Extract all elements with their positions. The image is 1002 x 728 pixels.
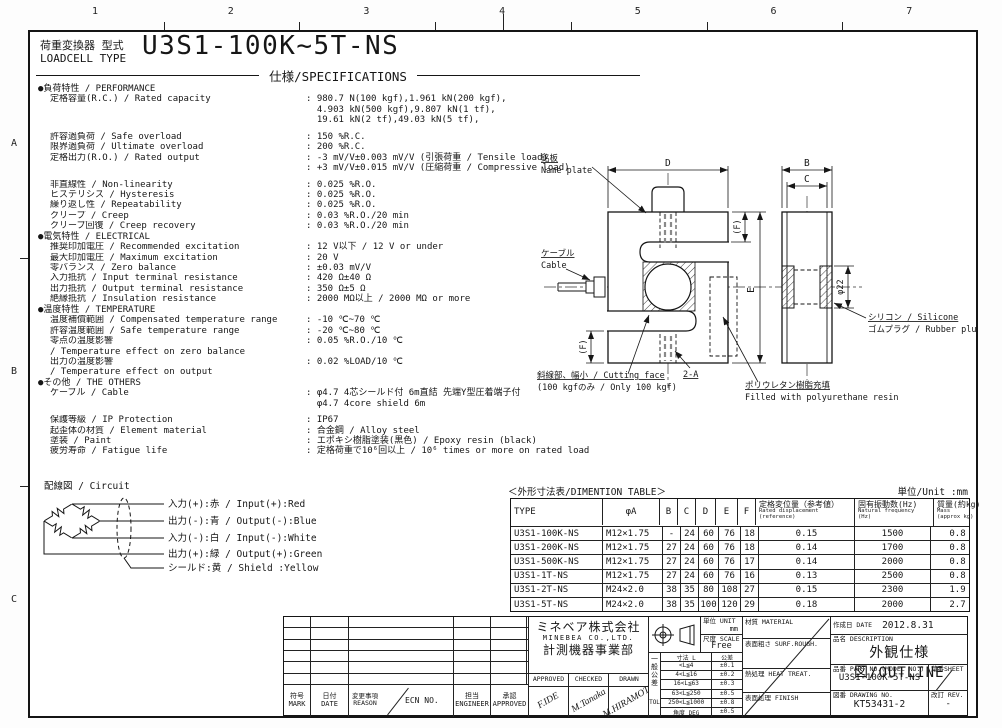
dimension-table-cell: 29 [741, 598, 759, 611]
spec-row: 保護等級 / IP Protection: IP67 [38, 415, 540, 425]
dimension-table-row: U3S1-2T-NSM24×2.0383580108270.1523001.9 [511, 584, 969, 598]
spec-section-header: ●負荷特性 / PERFORMANCE [38, 84, 540, 94]
dimension-table-header-cell: 固有振動数(Hz)Natural frequency(Hz) [855, 499, 934, 526]
spec-row: 最大印加電圧 / Maximum excitation: 20 V [38, 253, 540, 263]
dimension-table-header-cell: 質量(約kg)Mass(approx kg) [934, 499, 990, 526]
cutting-face-callout-en: (100 kgfのみ / Only 100 kgf) [537, 383, 677, 393]
spec-row: 入力抵抗 / Input terminal resistance: 420 Ω±… [38, 273, 540, 283]
sheet-label: 葉番SHEET [929, 665, 968, 673]
dimension-table-cell: 76 [719, 570, 741, 583]
spec-value: : 0.025 %R.O. [306, 180, 376, 190]
spec-label: 許容温度範囲 / Safe temperature range [38, 326, 306, 336]
spec-label: 疲労寿命 / Fatigue life [38, 446, 306, 456]
loadcell-type-label-en: LOADCELL TYPE [40, 52, 126, 65]
revision-mark-header: 符号MARK [284, 685, 311, 717]
spec-row: 定格出力(R.O.) / Rated output: -3 mV/V±0.003… [38, 153, 540, 163]
dimension-table-cell: U3S1-500K-NS [511, 555, 603, 568]
spec-row: φ4.7 4core shield 6m [38, 399, 540, 409]
dimension-table-row: U3S1-5T-NSM24×2.03835100120290.1820002.7 [511, 598, 969, 611]
unit-cell: 単位 UNIT mm [701, 617, 743, 635]
spec-label: 推奨印加電圧 / Recommended excitation [38, 242, 306, 252]
spec-row: : +3 mV/V±0.015 mV/V (圧縮荷重 / Compressive… [38, 163, 540, 173]
ruler-tick [20, 258, 28, 259]
dimension-table-cell: 2300 [855, 584, 931, 597]
material-block: 材質 MATERIAL 表面粗さ SURF.ROUGH. 熱処理 HEAT TR… [743, 617, 831, 717]
dimension-table-cell: M24×2.0 [603, 584, 663, 597]
spec-row: 出力抵抗 / Output terminal resistance: 350 Ω… [38, 284, 540, 294]
dimension-table-header-cell: D [696, 499, 716, 525]
spec-value: : 350 Ω±5 Ω [306, 284, 366, 294]
dimension-table-cell: 35 [681, 598, 699, 611]
spec-value: : +3 mV/V±0.015 mV/V (圧縮荷重 / Compressive… [306, 163, 570, 173]
dimension-table-caption: ＜外形寸法表/DIMENTION TABLE＞ 単位/Unit :mm [508, 484, 968, 498]
spec-label [38, 105, 306, 115]
specifications-title: 仕様/SPECIFICATIONS [269, 66, 407, 85]
front-view [558, 187, 737, 363]
dimension-table-row: U3S1-100K-NSM12×1.75-246076180.1515000.8 [511, 527, 969, 541]
dimension-table-row: U3S1-1T-NSM12×1.7527246076160.1325000.8 [511, 570, 969, 584]
revision-history-rows [284, 617, 528, 685]
dimension-table-cell: 60 [699, 555, 719, 568]
info-block: 作成日 DATE 2012.8.31 品名 DESCRIPTION 外観仕様図/… [831, 617, 968, 717]
dimension-table-cell: 0.13 [759, 570, 855, 583]
spec-row: 塗装 / Paint: エポキシ樹脂塗装(黒色) / Epoxy resin (… [38, 436, 540, 446]
dimension-table-cell: 38 [663, 584, 681, 597]
spec-label: 許容過負荷 / Safe overload [38, 132, 306, 142]
projection-symbol-cell [648, 617, 701, 653]
resin-callout-jp: ポリウレタン樹脂充填 [745, 380, 831, 391]
spec-label: 定格出力(R.O.) / Rated output [38, 153, 306, 163]
dimension-table-cell: 0.8 [931, 527, 984, 540]
spec-row: 零点の温度影響: 0.05 %R.O./10 ℃ [38, 336, 540, 346]
unit-value: mm [701, 625, 742, 633]
dimension-table-cell: 0.8 [931, 555, 984, 568]
spec-label: 保護等級 / IP Protection [38, 415, 306, 425]
dimension-table-cell: 0.18 [759, 598, 855, 611]
spec-label: クリープ回復 / Creep recovery [38, 221, 306, 231]
spec-row: 出力の温度影響: 0.02 %LOAD/10 ℃ [38, 357, 540, 367]
resin-callout-en: Filled with polyurethane resin [745, 393, 899, 403]
cable-callout-en: Cable [541, 261, 567, 271]
revision-approved-header: 承認APPROVED [491, 685, 528, 717]
title-block: 符号MARK 日付DATE 変更事項REASON ECN NO. 担当ENGIN… [283, 616, 968, 716]
ruler-tick [842, 22, 843, 30]
dimension-table-cell: M24×2.0 [603, 598, 663, 611]
spec-row: 疲労寿命 / Fatigue life: 定格荷重で10⁶回以上 / 10⁶ t… [38, 446, 540, 456]
dimension-table-cell: 18 [741, 541, 759, 554]
ruler-col-6: 6 [771, 6, 777, 17]
spec-label: ヒステリシス / Hysteresis [38, 190, 306, 200]
dimension-table-cell: U3S1-100K-NS [511, 527, 603, 540]
dimension-table-header-row: TYPEφABCDEF定格変位量（参考値）Rated displacement(… [511, 499, 969, 527]
spec-row: 4.903 kN(500 kgf),9.807 kN(1 tf), [38, 105, 540, 115]
spec-label: 入力抵抗 / Input terminal resistance [38, 273, 306, 283]
revision-empty-row [284, 662, 528, 673]
rubber-plug-left [782, 266, 794, 308]
dimension-table-cell: 27 [663, 541, 681, 554]
spec-label [38, 399, 306, 409]
dimension-table-cell: 80 [699, 584, 719, 597]
tolerance-table: 寸法 L公差<L≦4±0.14<L≦16±0.216<L≦63±0.363<L≦… [661, 653, 743, 717]
revision-label: 改訂 REV. [929, 691, 968, 699]
spec-value: : 0.025 %R.O. [306, 200, 376, 210]
dim-phi22: φ22 [836, 279, 846, 294]
ruler-tick [707, 22, 708, 30]
side-view [782, 212, 832, 363]
dimension-table-cell: 2000 [855, 598, 931, 611]
dimension-table-cell: 0.15 [759, 584, 855, 597]
spec-label: 限界過負荷 / Ultimate overload [38, 142, 306, 152]
dimension-table-cell: 16 [741, 570, 759, 583]
spec-value: : 420 Ω±40 Ω [306, 273, 371, 283]
wire-label-output-plus: 出力(+):緑 / Output(+):Green [168, 548, 322, 560]
spec-value: : -10 ℃~70 ℃ [306, 315, 380, 325]
name-plate-callout-en: Name plate [541, 166, 592, 176]
spec-value: : 980.7 N(100 kgf),1.961 kN(200 kgf), [306, 94, 506, 104]
tolerance-row: 4<L≦16±0.2 [661, 671, 742, 680]
dim-D: D [665, 158, 671, 169]
dimension-table-cell: 27 [663, 555, 681, 568]
ruler-col-3: 3 [363, 6, 369, 17]
spec-row: 推奨印加電圧 / Recommended excitation: 12 V以下 … [38, 242, 540, 252]
heat-treatment-label: 熱処理 HEAT TREAT. [743, 669, 830, 693]
ruler-row-B: B [11, 366, 17, 377]
dimension-table-cell: 2500 [855, 570, 931, 583]
spec-row: / Temperature effect on output [38, 367, 540, 377]
spec-label: 温度補償範囲 / Compensated temperature range [38, 315, 306, 325]
spec-row: 繰り返し性 / Repeatability: 0.025 %R.O. [38, 200, 540, 210]
loadcell-type-label: 荷重変換器 型式 LOADCELL TYPE [40, 39, 126, 65]
drawing-no-value: KT53431-2 [831, 699, 928, 710]
dim-F-top: (F) [733, 219, 743, 234]
spec-value: : -3 mV/V±0.003 mV/V (引張荷重 / Tensile loa… [306, 153, 548, 163]
dimension-table-cell: 1.9 [931, 584, 984, 597]
rubber-plug-right [820, 266, 832, 308]
dimension-table-cell: 1700 [855, 541, 931, 554]
spec-label [38, 163, 306, 173]
part-no-value: U3S1-100K~5T-NS [831, 673, 928, 683]
dimension-table-cell: 2.7 [931, 598, 984, 611]
revision-empty-row [284, 651, 528, 662]
material-label: 材質 MATERIAL [743, 617, 830, 639]
specification-list: ●負荷特性 / PERFORMANCE定格容量(R.C.) / Rated ca… [38, 84, 540, 457]
spec-row: ケーブル / Cable: φ4.7 4芯シールド付 6m直結 先端Y型圧着端子… [38, 388, 540, 398]
center-bore [645, 264, 691, 310]
spec-label: 零バランス / Zero balance [38, 263, 306, 273]
dimension-table-cell: U3S1-5T-NS [511, 598, 603, 611]
ruler-tick [299, 22, 300, 30]
signature-drawn: M.HIRAMOTO [601, 682, 648, 717]
divider-line-right [417, 75, 640, 76]
dimension-table-cell: 60 [699, 527, 719, 540]
ruler-tick [571, 22, 572, 30]
wire-label-input-plus: 入力(+):赤 / Input(+):Red [168, 498, 305, 510]
spec-row: 許容温度範囲 / Safe temperature range: -20 ℃~8… [38, 326, 540, 336]
spec-value: : 12 V以下 / 12 V or under [306, 242, 443, 252]
spec-value: : φ4.7 4芯シールド付 6m直結 先端Y型圧着端子付 [306, 388, 520, 398]
loadcell-type-label-jp: 荷重変換器 型式 [40, 39, 126, 52]
spec-row: 零バランス / Zero balance: ±0.03 mV/V [38, 263, 540, 273]
wire-label-input-minus: 入力(-):白 / Input(-):White [168, 532, 317, 544]
spec-row: / Temperature effect on zero balance [38, 347, 540, 357]
tolerance-row: 63<L≦250±0.5 [661, 690, 742, 699]
dimension-table-cell: M12×1.75 [603, 527, 663, 540]
dimension-table-header-cell: TYPE [511, 499, 603, 525]
spec-label: 定格容量(R.C.) / Rated capacity [38, 94, 306, 104]
dimension-table-cell: M12×1.75 [603, 541, 663, 554]
spec-row: ヒステリシス / Hysteresis: 0.025 %R.O. [38, 190, 540, 200]
third-angle-projection-icon [649, 617, 701, 653]
bolt-hole-label: 2-A [683, 370, 698, 380]
revision-empty-row [284, 674, 528, 685]
ruler-row-C: C [11, 594, 17, 605]
dimension-table-cell: 76 [719, 527, 741, 540]
dimension-table-cell: 1500 [855, 527, 931, 540]
dimension-table-title: ＜外形寸法表/DIMENTION TABLE＞ [508, 484, 666, 498]
date-label: 作成日 DATE [831, 622, 872, 629]
dimension-table-row: U3S1-500K-NSM12×1.7527246076170.1420000.… [511, 555, 969, 569]
dimension-table-cell: 0.8 [931, 541, 984, 554]
ruler-tick [435, 22, 436, 30]
dim-F-bottom: (F) [579, 339, 589, 354]
dimension-table-header-cell: F [738, 499, 756, 525]
dimension-table-cell: 27 [663, 570, 681, 583]
spec-row: 非直線性 / Non-linearity: 0.025 %R.O. [38, 180, 540, 190]
dim-C: C [804, 174, 810, 185]
drawing-sheet: 1234567 ABC 荷重変換器 型式 LOADCELL TYPE U3S1-… [0, 0, 1002, 728]
dimension-table-row: U3S1-200K-NSM12×1.7527246076180.1417000.… [511, 541, 969, 555]
spec-value: : ±0.03 mV/V [306, 263, 371, 273]
spec-row: 起歪体の材質 / Element material: 合金鋼 / Alloy s… [38, 426, 540, 436]
spec-value: : 0.02 %LOAD/10 ℃ [306, 357, 403, 367]
spec-label: クリープ / Creep [38, 211, 306, 221]
wire-label-output-minus: 出力(-):青 / Output(-):Blue [168, 515, 317, 527]
spec-label: 最大印加電圧 / Maximum excitation [38, 253, 306, 263]
scale-cell: 尺度 SCALE Free [701, 635, 743, 653]
spec-label: 出力抵抗 / Output terminal resistance [38, 284, 306, 294]
dimension-table-cell: 100 [699, 598, 719, 611]
spec-label: 零点の温度影響 [38, 336, 306, 346]
spec-label: 繰り返し性 / Repeatability [38, 200, 306, 210]
spec-label: ケーブル / Cable [38, 388, 306, 398]
spec-value: 4.903 kN(500 kgf),9.807 kN(1 tf), [306, 105, 496, 115]
dimension-table-cell: 0.15 [759, 527, 855, 540]
spec-row: 許容過負荷 / Safe overload: 150 %R.C. [38, 132, 540, 142]
model-number: U3S1-100K~5T-NS [142, 31, 399, 61]
spec-value: : 0.03 %R.O./20 min [306, 221, 409, 231]
dimension-table-header-cell: B [660, 499, 678, 525]
spec-value: : エポキシ樹脂塗装(黒色) / Epoxy resin (black) [306, 436, 537, 446]
dimension-table: TYPEφABCDEF定格変位量（参考値）Rated displacement(… [510, 498, 970, 612]
spec-row: 定格容量(R.C.) / Rated capacity: 980.7 N(100… [38, 94, 540, 104]
dim-B: B [804, 158, 810, 169]
dimension-table-cell: U3S1-2T-NS [511, 584, 603, 597]
spec-row: 限界過負荷 / Ultimate overload: 200 %R.C. [38, 142, 540, 152]
dimension-table-cell: 27 [741, 584, 759, 597]
revision-value: - [929, 699, 968, 709]
dimension-table-cell: 38 [663, 598, 681, 611]
spec-value: : 合金鋼 / Alloy steel [306, 426, 420, 436]
spec-row: クリープ / Creep: 0.03 %R.O./20 min [38, 211, 540, 221]
tolerance-row: 250<L≦1000±0.8 [661, 699, 742, 708]
name-plate-callout-jp: 銘板 [541, 153, 559, 164]
silicone-callout-jp: シリコン / Silicone [868, 313, 958, 323]
specifications-divider: 仕様/SPECIFICATIONS [36, 66, 640, 85]
spec-label [38, 115, 306, 125]
ruler-col-7: 7 [906, 6, 912, 17]
dimension-table-cell: 0.8 [931, 570, 984, 583]
spec-value: : 20 V [306, 253, 339, 263]
revision-engineer-header: 担当ENGINEER [454, 685, 491, 717]
dimension-table-cell: 0.14 [759, 555, 855, 568]
dimension-table-cell: - [663, 527, 681, 540]
tolerance-header-row: 寸法 L公差 [661, 653, 742, 662]
dimension-table-cell: 60 [699, 570, 719, 583]
ruler-row-A: A [11, 138, 17, 149]
spec-label: 起歪体の材質 / Element material [38, 426, 306, 436]
wire-label-shield: シールド:黄 / Shield :Yellow [168, 562, 319, 574]
surface-roughness-label: 表面粗さ SURF.ROUGH. [743, 639, 830, 669]
dimension-table-cell: U3S1-200K-NS [511, 541, 603, 554]
dimension-table-header-cell: φA [603, 499, 660, 525]
tolerance-row: 16<L≦63±0.3 [661, 680, 742, 689]
ruler-tick [20, 486, 28, 487]
dimension-table-cell: 76 [719, 555, 741, 568]
tolerance-row: 角度 DEG±0.5 [661, 708, 742, 717]
dimension-table-header-cell: E [716, 499, 738, 525]
spec-label: 非直線性 / Non-linearity [38, 180, 306, 190]
spec-value: : 0.03 %R.O./20 min [306, 211, 409, 221]
company-name-jp: ミネベア株式会社 [529, 620, 648, 634]
dimension-table-header-cell: C [678, 499, 696, 525]
dim-E: E [746, 287, 757, 293]
spec-row: 温度補償範囲 / Compensated temperature range: … [38, 315, 540, 325]
dimension-table-cell: 108 [719, 584, 741, 597]
revision-empty-row [284, 640, 528, 651]
dimension-table-header-cell: 定格変位量（参考値）Rated displacement(reference) [756, 499, 855, 526]
ruler-col-2: 2 [228, 6, 234, 17]
dimension-table-cell: 60 [699, 541, 719, 554]
spec-value: : IP67 [306, 415, 339, 425]
dimension-table-cell: 2000 [855, 555, 931, 568]
spec-value: 19.61 kN(2 tf),49.03 kN(5 tf), [306, 115, 479, 125]
dimension-table-cell: 24 [681, 541, 699, 554]
spec-label: 出力の温度影響 [38, 357, 306, 367]
dimension-table-cell: 0.14 [759, 541, 855, 554]
ruler-center-tick [503, 14, 504, 30]
tolerance-row: <L≦4±0.1 [661, 662, 742, 671]
date-value: 2012.8.31 [882, 620, 933, 631]
general-tolerance-side: 一般公差 TOL [648, 653, 661, 717]
finish-label: 表面処理 FINISH [743, 693, 830, 717]
dimension-table-cell: M12×1.75 [603, 555, 663, 568]
revision-date-header: 日付DATE [311, 685, 349, 717]
spec-row: クリープ回復 / Creep recovery: 0.03 %R.O./20 m… [38, 221, 540, 231]
unit-note: 単位/Unit :mm [898, 484, 968, 498]
cutting-face-callout-jp: 斜線部、幅小 / Cutting face [537, 370, 665, 381]
drawing-no-label: 図番 DRAWING NO. [831, 691, 928, 699]
company-name-en: MINEBEA CO.,LTD. [529, 634, 648, 643]
dimension-table-cell: 24 [681, 555, 699, 568]
company-block: ミネベア株式会社 MINEBEA CO.,LTD. 計測機器事業部 APPROV… [528, 617, 648, 717]
ruler-col-1: 1 [92, 6, 98, 17]
outline-drawing: D B C E (F) (F) φ22 銘板 Name plate ケーブル C… [535, 135, 978, 480]
divider-line-left [36, 75, 259, 76]
revision-reason-header: 変更事項REASON ECN NO. [349, 685, 454, 717]
dimension-table-cell: 24 [681, 527, 699, 540]
dimension-table-cell: 35 [681, 584, 699, 597]
dimension-table-cell: 76 [719, 541, 741, 554]
part-no-label: 品番 PART NO.(MODEL NO.) [831, 665, 928, 673]
dimension-table-cell: 18 [741, 527, 759, 540]
spec-value: : 200 %R.C. [306, 142, 366, 152]
spec-value: φ4.7 4core shield 6m [306, 399, 425, 409]
revision-empty-row [284, 617, 528, 628]
bridge-circuit-diagram: 入力(+):赤 / Input(+):Red 出力(-):青 / Output(… [30, 490, 370, 590]
spec-label: 絶縁抵抗 / Insulation resistance [38, 294, 306, 304]
spec-row: 絶縁抵抗 / Insulation resistance: 2000 MΩ以上 … [38, 294, 540, 304]
dimension-table-cell: 24 [681, 570, 699, 583]
spec-value: : 0.05 %R.O./10 ℃ [306, 336, 403, 346]
signature-approved: F.IDE [536, 691, 561, 711]
ruler-col-5: 5 [635, 6, 641, 17]
spec-row: 19.61 kN(2 tf),49.03 kN(5 tf), [38, 115, 540, 125]
spec-label: 塗装 / Paint [38, 436, 306, 446]
spec-section-header: ●電気特性 / ELECTRICAL [38, 232, 540, 242]
revision-empty-row [284, 628, 528, 639]
spec-value: : 150 %R.C. [306, 132, 366, 142]
silicone-callout-en: ゴムプラグ / Rubber plug [868, 324, 978, 335]
spec-value: : -20 ℃~80 ℃ [306, 326, 380, 336]
spec-value: : 0.025 %R.O. [306, 190, 376, 200]
company-division: 計測機器事業部 [529, 643, 648, 657]
dimension-table-cell: 120 [719, 598, 741, 611]
spec-value: : 2000 MΩ以上 / 2000 MΩ or more [306, 294, 470, 304]
spec-section-header: ●その他 / THE OTHERS [38, 378, 540, 388]
spec-label: / Temperature effect on zero balance [38, 347, 306, 357]
dimension-table-cell: U3S1-1T-NS [511, 570, 603, 583]
ruler-tick [164, 22, 165, 30]
dimension-table-cell: M12×1.75 [603, 570, 663, 583]
dimension-table-cell: 17 [741, 555, 759, 568]
spec-label: / Temperature effect on output [38, 367, 306, 377]
cable-callout-jp: ケーブル [541, 248, 575, 259]
spec-section-header: ●温度特性 / TEMPERATURE [38, 305, 540, 315]
